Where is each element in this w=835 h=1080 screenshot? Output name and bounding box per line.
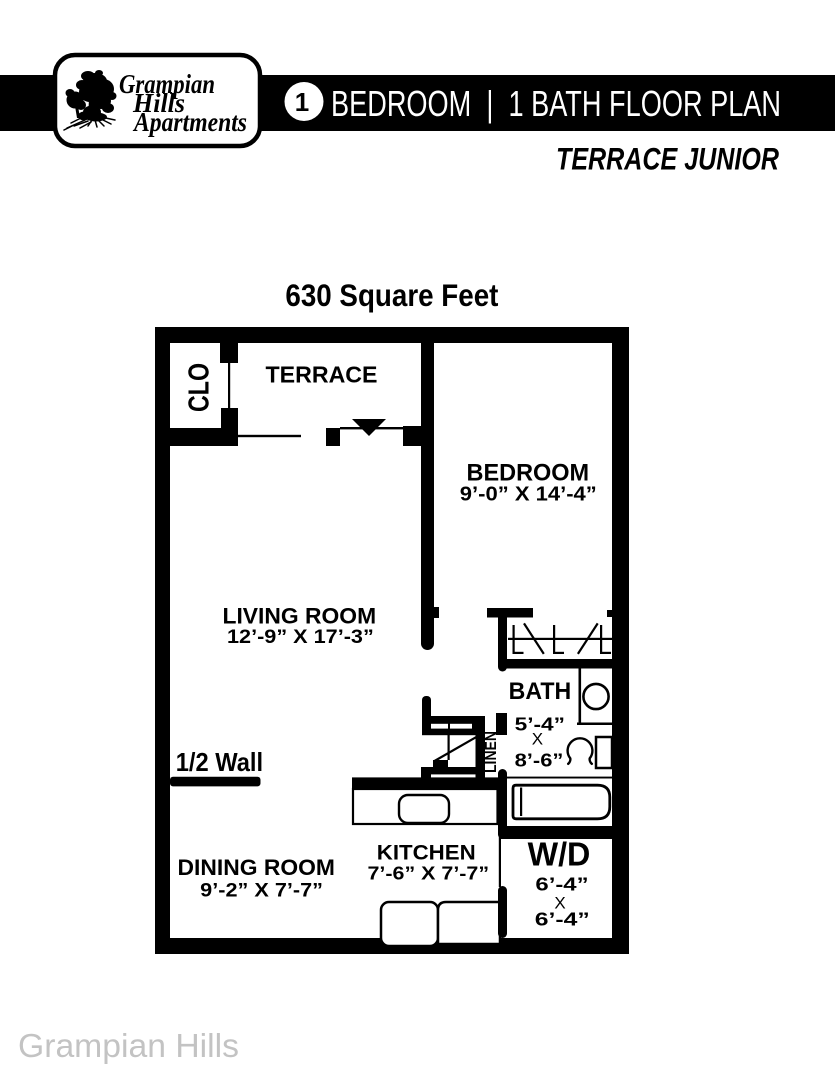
svg-text:TERRACE JUNIOR: TERRACE JUNIOR	[556, 141, 779, 177]
svg-text:X: X	[532, 729, 543, 748]
svg-text:KITCHEN: KITCHEN	[377, 841, 476, 864]
svg-text:TERRACE: TERRACE	[266, 361, 378, 387]
svg-text:LINEN: LINEN	[483, 731, 500, 773]
svg-text:9’-2” X 7’-7”: 9’-2” X 7’-7”	[200, 879, 323, 901]
svg-text:630 Square Feet: 630 Square Feet	[285, 277, 498, 313]
svg-text:1/2 Wall: 1/2 Wall	[176, 747, 263, 777]
svg-text:BEDROOM: BEDROOM	[467, 460, 590, 487]
svg-text:1: 1	[295, 87, 309, 117]
svg-text:Apartments: Apartments	[132, 107, 247, 137]
svg-text:12’-9” X 17’-3”: 12’-9” X 17’-3”	[227, 626, 374, 648]
svg-text:7’-6” X 7’-7”: 7’-6” X 7’-7”	[368, 862, 490, 883]
svg-text:6’-4”: 6’-4”	[535, 908, 590, 929]
svg-text:W/D: W/D	[528, 836, 591, 873]
svg-text:6’-4”: 6’-4”	[535, 874, 588, 895]
svg-text:9’-0” X 14’-4”: 9’-0” X 14’-4”	[460, 484, 597, 506]
svg-text:CLO: CLO	[184, 363, 216, 412]
svg-text:BATH: BATH	[509, 678, 572, 705]
svg-text:DINING ROOM: DINING ROOM	[178, 855, 335, 880]
svg-text:LIVING ROOM: LIVING ROOM	[223, 604, 377, 629]
svg-text:BEDROOM | 1 BATH FLOOR PLAN: BEDROOM | 1 BATH FLOOR PLAN	[331, 83, 781, 124]
svg-text:Grampian Hills: Grampian Hills	[18, 1028, 239, 1065]
svg-text:8’-6”: 8’-6”	[515, 750, 564, 771]
